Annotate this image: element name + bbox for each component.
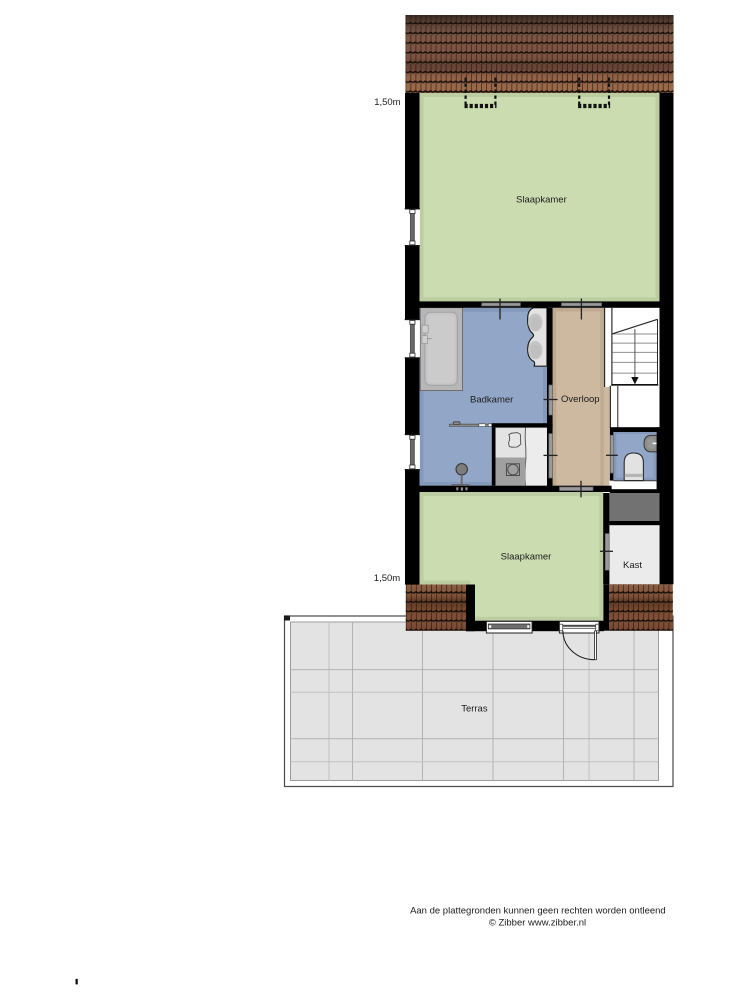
svg-text:Kast: Kast bbox=[623, 560, 642, 571]
svg-text:Slaapkamer: Slaapkamer bbox=[516, 194, 567, 205]
svg-text:Overloop: Overloop bbox=[561, 394, 600, 405]
svg-text:1,50m: 1,50m bbox=[374, 97, 400, 108]
svg-text:Aan de plattegronden kunnen ge: Aan de plattegronden kunnen geen rechten… bbox=[410, 906, 666, 917]
svg-text:1,50m: 1,50m bbox=[374, 573, 400, 584]
svg-text:Badkamer: Badkamer bbox=[470, 395, 513, 406]
svg-text:Slaapkamer: Slaapkamer bbox=[501, 552, 552, 563]
svg-text:© Zibber www.zibber.nl: © Zibber www.zibber.nl bbox=[489, 918, 586, 929]
svg-text:Terras: Terras bbox=[461, 704, 488, 715]
